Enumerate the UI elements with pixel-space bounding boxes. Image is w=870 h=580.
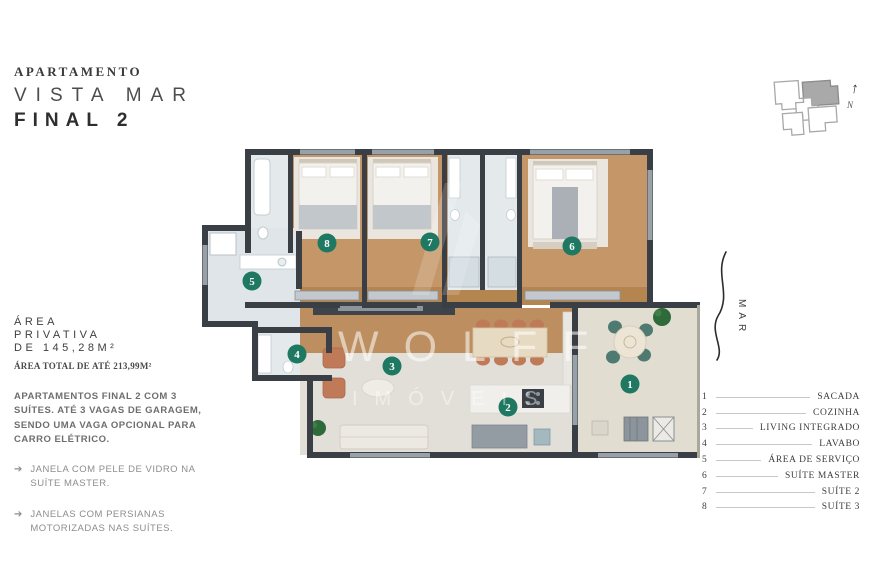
legend-line	[716, 459, 761, 461]
keyplan-unit	[808, 106, 838, 132]
legend-label: LIVING INTEGRADO	[760, 423, 860, 433]
legend-row: 1 SACADA	[702, 389, 860, 405]
bullet-item: ➔ JANELAS COM PERSIANAS MOTORIZADAS NAS …	[14, 508, 210, 537]
legend-row: 3 LIVING INTEGRADO	[702, 421, 860, 437]
sea-indicator: MAR	[706, 250, 747, 362]
title-block: APARTAMENTO VISTA MAR FINAL 2	[14, 64, 195, 132]
svg-text:3: 3	[389, 361, 395, 373]
north-label: N	[844, 100, 856, 110]
room-marker-7: 7	[421, 233, 440, 252]
sea-label: MAR	[736, 299, 747, 336]
svg-text:4: 4	[294, 349, 300, 361]
legend-number: 5	[702, 455, 712, 465]
suite-2-bed	[368, 157, 438, 239]
room-marker-5: 5	[243, 272, 262, 291]
title-kicker: APARTAMENTO	[14, 64, 195, 80]
legend-line	[716, 427, 753, 429]
area-line-1: ÁREA	[14, 316, 152, 329]
svg-text:8: 8	[324, 238, 330, 250]
legend-row: 4 LAVABO	[702, 436, 860, 452]
legend-line	[716, 396, 810, 398]
building-keyplan	[768, 72, 846, 147]
legend-label: COZINHA	[813, 408, 860, 418]
area-total: ÁREA TOTAL DE ATÉ 213,99M²	[14, 361, 152, 371]
arrow-icon: ➔	[14, 463, 22, 492]
legend-line	[716, 412, 806, 414]
description-paragraph: APARTAMENTOS FINAL 2 COM 3 SUÍTES. ATÉ 3…	[14, 390, 210, 447]
legend-number: 6	[702, 471, 712, 481]
room-marker-2: 2	[499, 398, 518, 417]
svg-text:2: 2	[505, 402, 511, 414]
legend-label: ÁREA DE SERVIÇO	[768, 455, 860, 465]
legend-number: 3	[702, 423, 712, 433]
arrow-icon: ➔	[14, 508, 22, 537]
legend-number: 4	[702, 439, 712, 449]
legend-row: 7 SUÍTE 2	[702, 484, 860, 500]
legend-line	[716, 443, 812, 445]
legend-number: 1	[702, 392, 712, 402]
svg-text:1: 1	[627, 379, 633, 391]
legend-number: 7	[702, 487, 712, 497]
area-line-2: PRIVATIVA	[14, 329, 152, 342]
room-marker-1: 1	[621, 375, 640, 394]
north-compass: ↑ N	[844, 80, 866, 110]
area-line-3: DE 145,28M²	[14, 342, 152, 355]
svg-text:6: 6	[569, 241, 575, 253]
floor-plan: 1 2 3 4 5 6 7	[200, 145, 700, 480]
suite-3-bed	[294, 157, 360, 239]
legend-label: SUÍTE 2	[822, 487, 860, 497]
title-line1: VISTA MAR	[14, 85, 195, 107]
bullet-item: ➔ JANELA COM PELE DE VIDRO NA SUÍTE MAST…	[14, 463, 210, 492]
floor-plan-drawing: 1 2 3 4 5 6 7	[200, 145, 700, 480]
legend-line	[716, 475, 778, 477]
bullet-text: JANELA COM PELE DE VIDRO NA SUÍTE MASTER…	[30, 463, 210, 492]
legend-number: 2	[702, 408, 712, 418]
wave-icon	[706, 250, 732, 362]
legend-label: SUÍTE 3	[822, 502, 860, 512]
brochure-page: APARTAMENTO VISTA MAR FINAL 2 ÁREA PRIVA…	[0, 0, 870, 580]
legend-number: 8	[702, 502, 712, 512]
title-line2: FINAL 2	[14, 110, 195, 132]
legend-label: SUÍTE MASTER	[785, 471, 860, 481]
legend-row: 2 COZINHA	[702, 405, 860, 421]
keyplan-unit	[782, 112, 803, 135]
svg-text:7: 7	[427, 237, 433, 249]
legend-line	[716, 491, 815, 493]
legend-label: LAVABO	[819, 439, 860, 449]
bullet-text: JANELAS COM PERSIANAS MOTORIZADAS NAS SU…	[30, 508, 210, 537]
room-marker-6: 6	[563, 237, 582, 256]
legend-row: 8 SUÍTE 3	[702, 500, 860, 516]
room-marker-8: 8	[318, 234, 337, 253]
legend-row: 6 SUÍTE MASTER	[702, 468, 860, 484]
description-block: APARTAMENTOS FINAL 2 COM 3 SUÍTES. ATÉ 3…	[14, 390, 210, 536]
svg-text:5: 5	[249, 276, 255, 288]
master-suite-bed	[528, 159, 608, 249]
north-arrow-icon: ↑	[850, 79, 860, 97]
legend-row: 5 ÁREA DE SERVIÇO	[702, 452, 860, 468]
area-block: ÁREA PRIVATIVA DE 145,28M² ÁREA TOTAL DE…	[14, 316, 152, 371]
legend: 1 SACADA 2 COZINHA 3 LIVING INTEGRADO 4 …	[702, 389, 860, 515]
keyplan-drawing	[768, 72, 846, 142]
legend-label: SACADA	[817, 392, 860, 402]
room-marker-4: 4	[288, 345, 307, 364]
room-marker-3: 3	[383, 357, 402, 376]
balcony-railing	[697, 305, 700, 458]
legend-line	[716, 506, 815, 508]
